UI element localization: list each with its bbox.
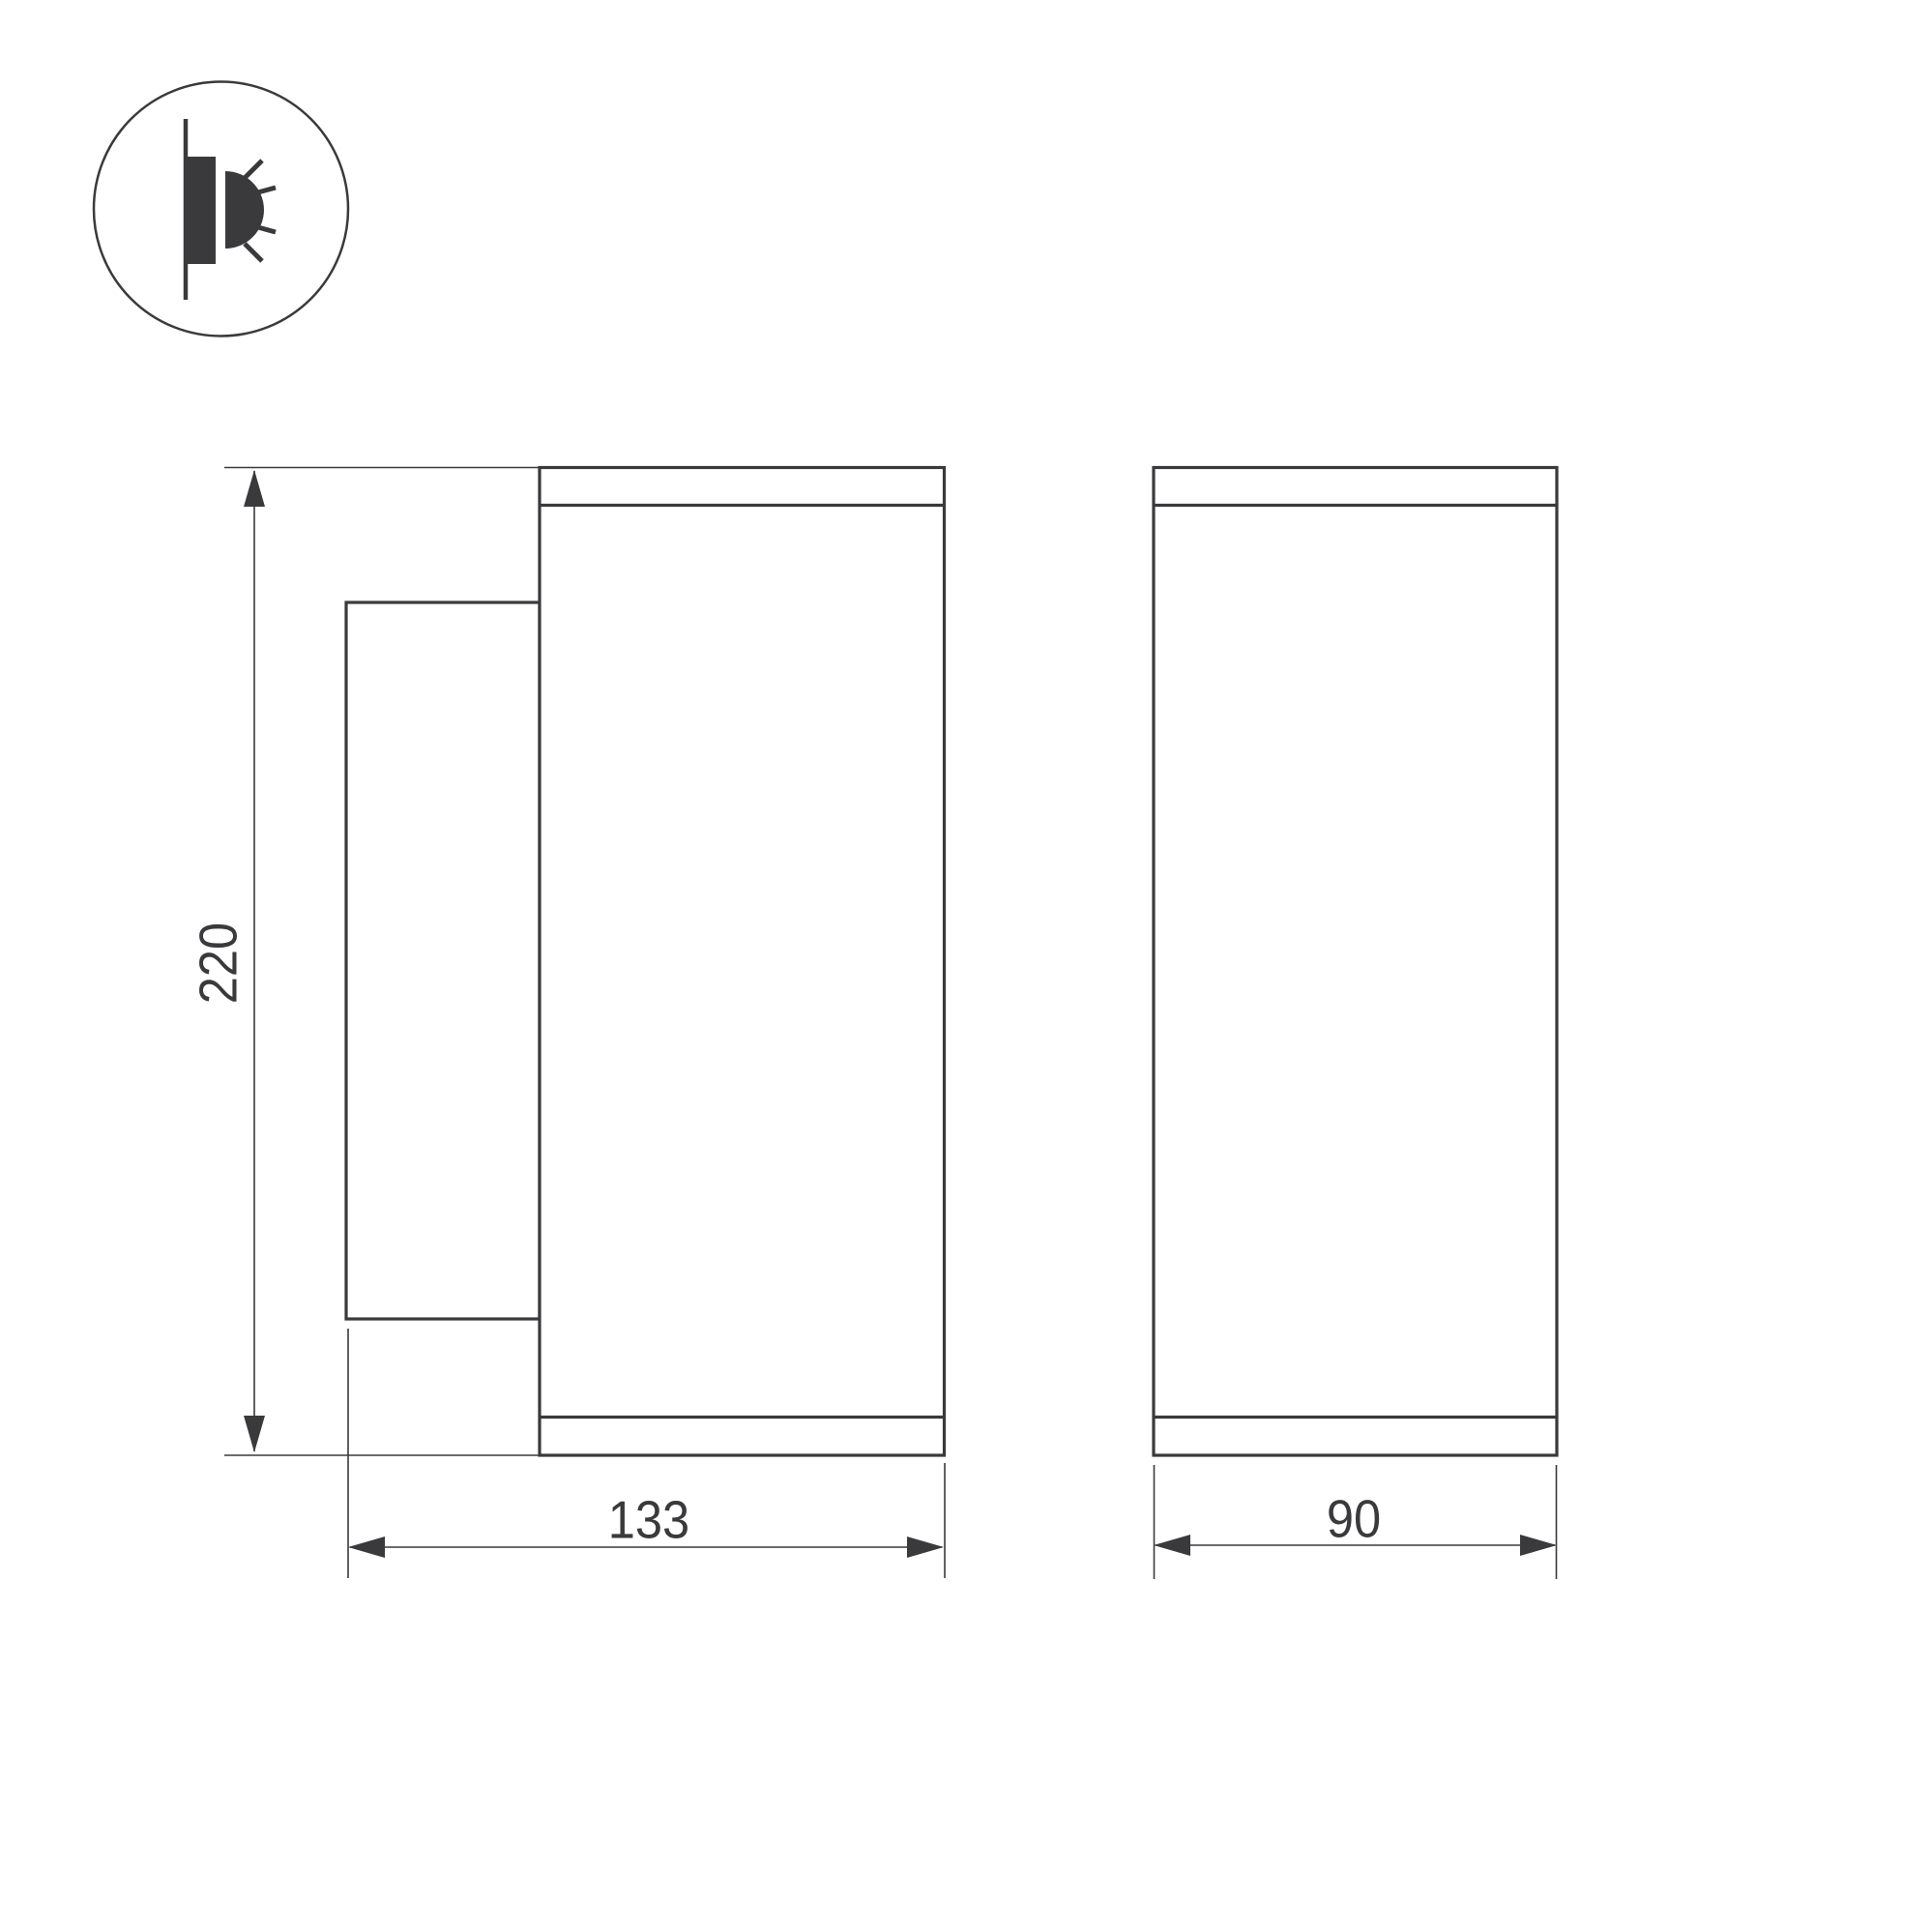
arrow-right-icon — [907, 1537, 944, 1558]
arrow-down-icon — [244, 1416, 265, 1452]
icon-circle-border — [94, 82, 348, 337]
side-view-body — [540, 468, 945, 1456]
arrow-left-icon — [1154, 1535, 1190, 1556]
width-dimension: 90 — [1154, 1465, 1557, 1579]
width-dimension-label: 90 — [1327, 1489, 1381, 1548]
height-dimension-label: 220 — [189, 922, 248, 1004]
depth-dimension-label: 133 — [608, 1490, 689, 1549]
light-beam-half-disc — [225, 171, 264, 249]
lamp-body-glyph — [186, 157, 216, 264]
front-view-body — [1154, 468, 1557, 1456]
wall-mounted-light-side-emission-icon — [94, 82, 348, 337]
arrow-up-icon — [244, 470, 265, 507]
side-view-wall-plate — [346, 602, 540, 1319]
technical-drawing-canvas: 220 133 90 — [0, 0, 1932, 1932]
arrow-left-icon — [348, 1537, 385, 1558]
light-ray-icon — [245, 244, 262, 261]
light-ray-icon — [245, 161, 262, 178]
side-view — [346, 468, 945, 1456]
dimension-drawing-page: 220 133 90 — [0, 0, 1932, 1932]
front-view — [1154, 468, 1557, 1456]
arrow-right-icon — [1520, 1535, 1557, 1556]
